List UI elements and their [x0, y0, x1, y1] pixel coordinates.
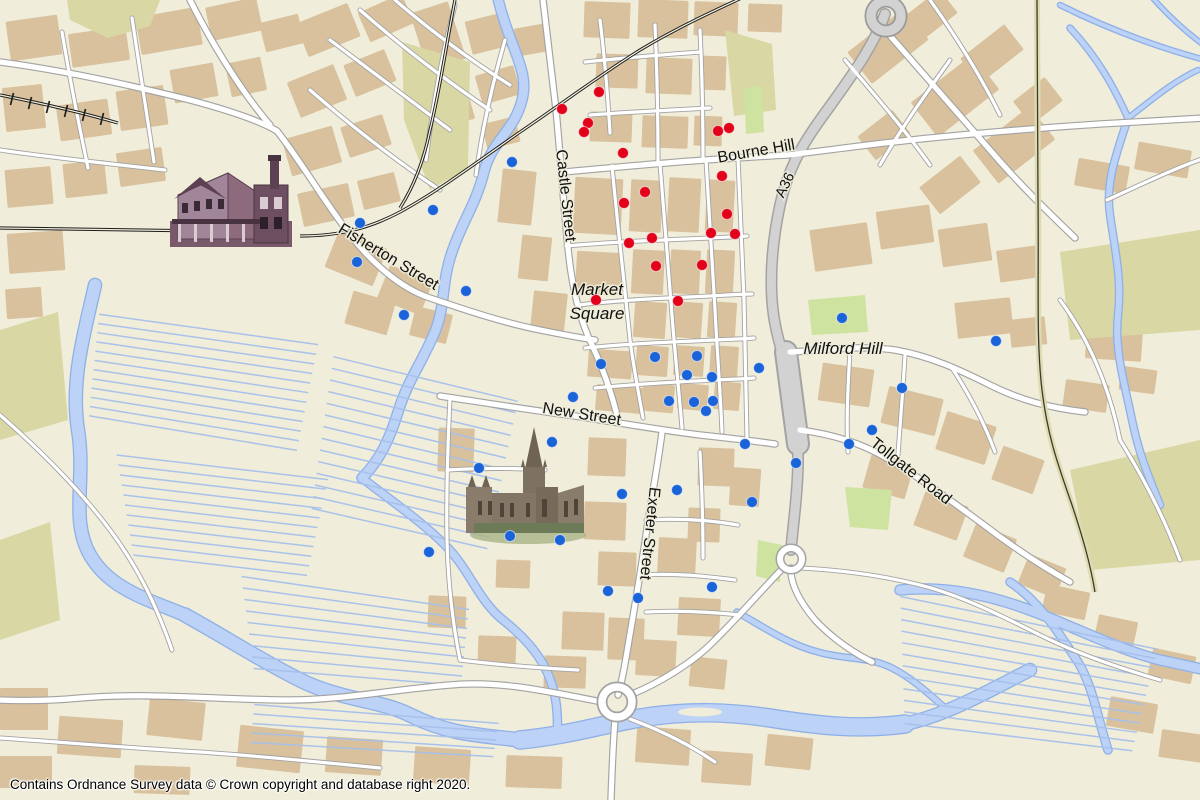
blue-marker[interactable]	[399, 310, 410, 321]
blue-marker[interactable]	[754, 363, 765, 374]
blue-marker[interactable]	[708, 396, 719, 407]
blue-marker[interactable]	[428, 205, 439, 216]
blue-marker[interactable]	[507, 157, 518, 168]
red-marker[interactable]	[618, 148, 629, 159]
blue-marker[interactable]	[740, 439, 751, 450]
blue-marker[interactable]	[791, 458, 802, 469]
blue-marker[interactable]	[505, 531, 516, 542]
blue-marker[interactable]	[664, 396, 675, 407]
red-marker[interactable]	[713, 126, 724, 137]
blue-marker[interactable]	[707, 582, 718, 593]
map-wrap: Castle StreetFisherton StreetBourne Hill…	[0, 0, 1200, 800]
red-marker[interactable]	[557, 104, 568, 115]
blue-marker[interactable]	[867, 425, 878, 436]
red-marker[interactable]	[697, 260, 708, 271]
blue-marker[interactable]	[568, 392, 579, 403]
blue-marker[interactable]	[897, 383, 908, 394]
blue-marker[interactable]	[707, 372, 718, 383]
label-milford-hill: Milford Hill	[803, 339, 884, 358]
blue-marker[interactable]	[474, 463, 485, 474]
red-marker[interactable]	[647, 233, 658, 244]
red-marker[interactable]	[624, 238, 635, 249]
label-market-square-2: Square	[570, 304, 625, 323]
red-marker[interactable]	[594, 87, 605, 98]
blue-marker[interactable]	[672, 485, 683, 496]
blue-marker[interactable]	[352, 257, 363, 268]
red-marker[interactable]	[619, 198, 630, 209]
blue-marker[interactable]	[633, 593, 644, 604]
red-marker[interactable]	[640, 187, 651, 198]
blue-marker[interactable]	[355, 218, 366, 229]
red-marker[interactable]	[579, 127, 590, 138]
blue-marker[interactable]	[692, 351, 703, 362]
blue-marker[interactable]	[747, 497, 758, 508]
blue-marker[interactable]	[555, 535, 566, 546]
red-marker[interactable]	[651, 261, 662, 272]
red-marker[interactable]	[724, 123, 735, 134]
red-marker[interactable]	[717, 171, 728, 182]
map-canvas[interactable]: Castle StreetFisherton StreetBourne Hill…	[0, 0, 1200, 800]
blue-marker[interactable]	[689, 397, 700, 408]
blue-marker[interactable]	[844, 439, 855, 450]
blue-marker[interactable]	[461, 286, 472, 297]
blue-marker[interactable]	[650, 352, 661, 363]
red-marker[interactable]	[722, 209, 733, 220]
blue-marker[interactable]	[596, 359, 607, 370]
blue-marker[interactable]	[547, 437, 558, 448]
red-marker[interactable]	[730, 229, 741, 240]
blue-marker[interactable]	[837, 313, 848, 324]
blue-marker[interactable]	[617, 489, 628, 500]
blue-marker[interactable]	[603, 586, 614, 597]
red-marker[interactable]	[591, 295, 602, 306]
blue-marker[interactable]	[991, 336, 1002, 347]
attribution: Contains Ordnance Survey data © Crown co…	[10, 777, 470, 792]
red-marker[interactable]	[706, 228, 717, 239]
blue-marker[interactable]	[424, 547, 435, 558]
blue-marker[interactable]	[701, 406, 712, 417]
blue-marker[interactable]	[682, 370, 693, 381]
red-marker[interactable]	[673, 296, 684, 307]
